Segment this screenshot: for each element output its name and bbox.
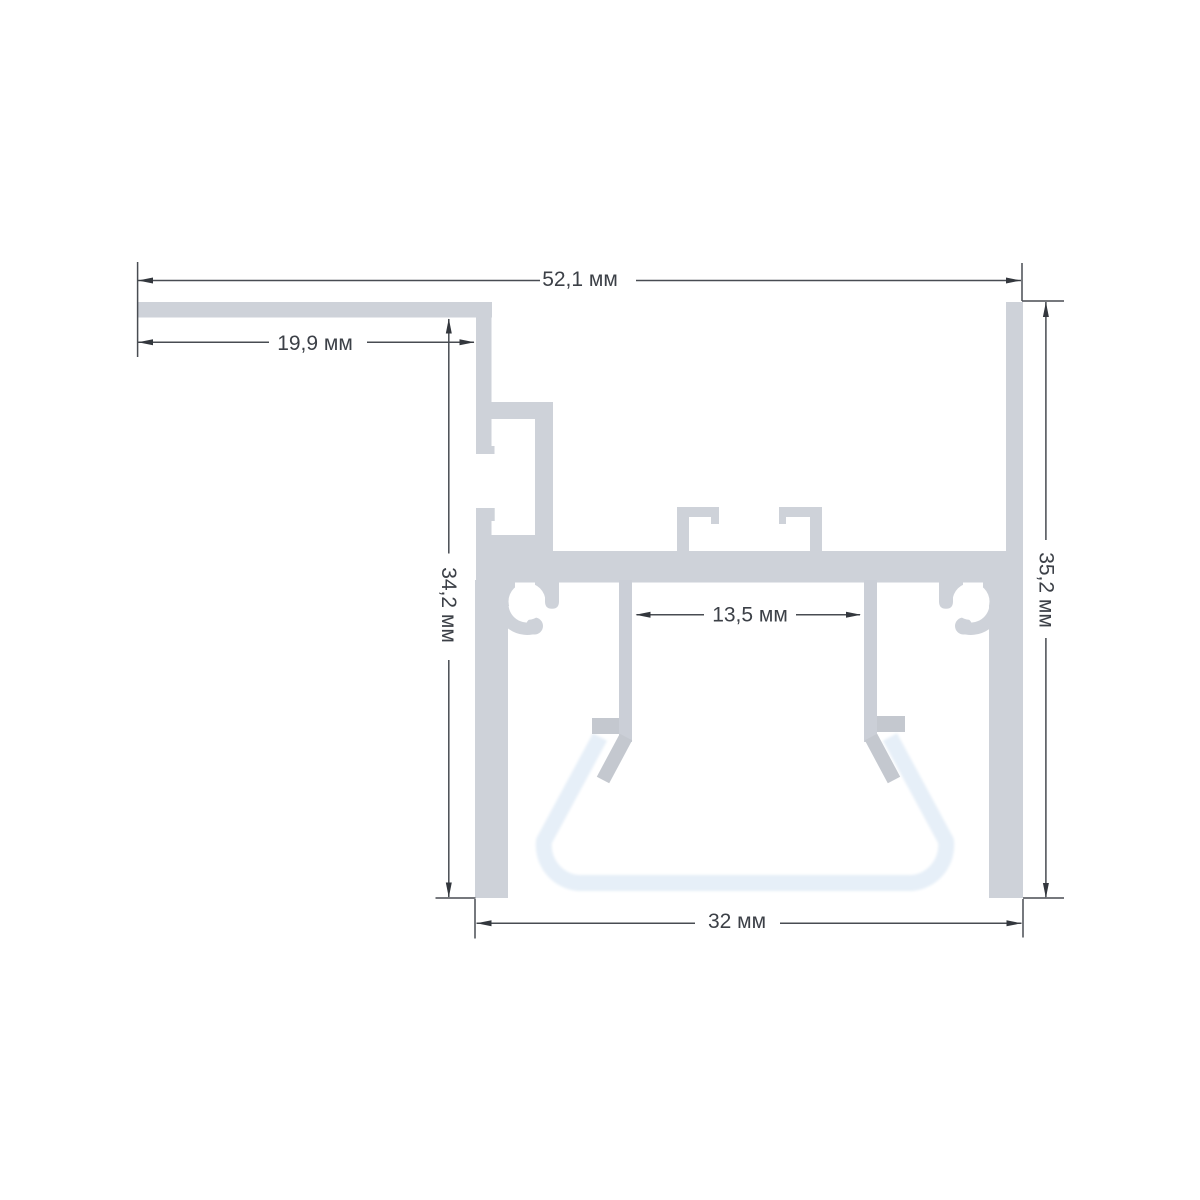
svg-text:35,2 мм: 35,2 мм (1035, 552, 1058, 628)
svg-text:52,1 мм: 52,1 мм (542, 268, 618, 291)
svg-text:19,9 мм: 19,9 мм (277, 332, 353, 355)
svg-text:13,5 мм: 13,5 мм (712, 604, 788, 627)
svg-text:34,2 мм: 34,2 мм (437, 567, 460, 643)
svg-text:32 мм: 32 мм (708, 910, 766, 933)
